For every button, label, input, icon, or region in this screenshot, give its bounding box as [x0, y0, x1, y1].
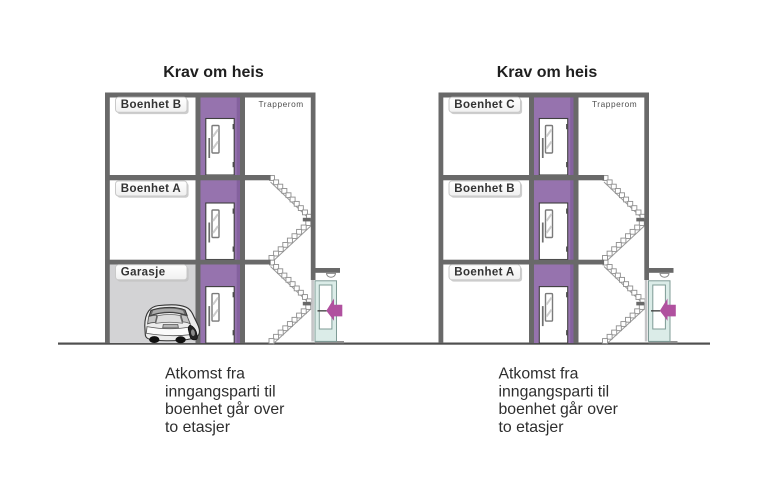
svg-text:Boenhet A: Boenhet A — [454, 267, 514, 279]
svg-text:Trapperom: Trapperom — [592, 99, 637, 109]
svg-text:boenhet går over: boenhet går over — [499, 400, 618, 418]
svg-text:inngangsparti til: inngangsparti til — [499, 383, 610, 400]
svg-text:Boenhet B: Boenhet B — [454, 183, 515, 195]
svg-text:Trapperom: Trapperom — [259, 99, 304, 109]
svg-text:to etasjer: to etasjer — [165, 419, 230, 436]
svg-text:Boenhet B: Boenhet B — [121, 99, 182, 111]
svg-text:Krav om heis: Krav om heis — [497, 64, 598, 81]
svg-text:Atkomst fra: Atkomst fra — [499, 366, 579, 383]
svg-text:inngangsparti til: inngangsparti til — [165, 383, 276, 400]
svg-text:Boenhet A: Boenhet A — [121, 183, 181, 195]
svg-text:boenhet går over: boenhet går over — [165, 400, 284, 418]
svg-text:Krav om heis: Krav om heis — [163, 64, 264, 81]
svg-text:Atkomst fra: Atkomst fra — [165, 366, 245, 383]
svg-text:to etasjer: to etasjer — [499, 419, 564, 436]
svg-text:Garasje: Garasje — [121, 267, 166, 279]
svg-text:Boenhet C: Boenhet C — [454, 99, 515, 111]
